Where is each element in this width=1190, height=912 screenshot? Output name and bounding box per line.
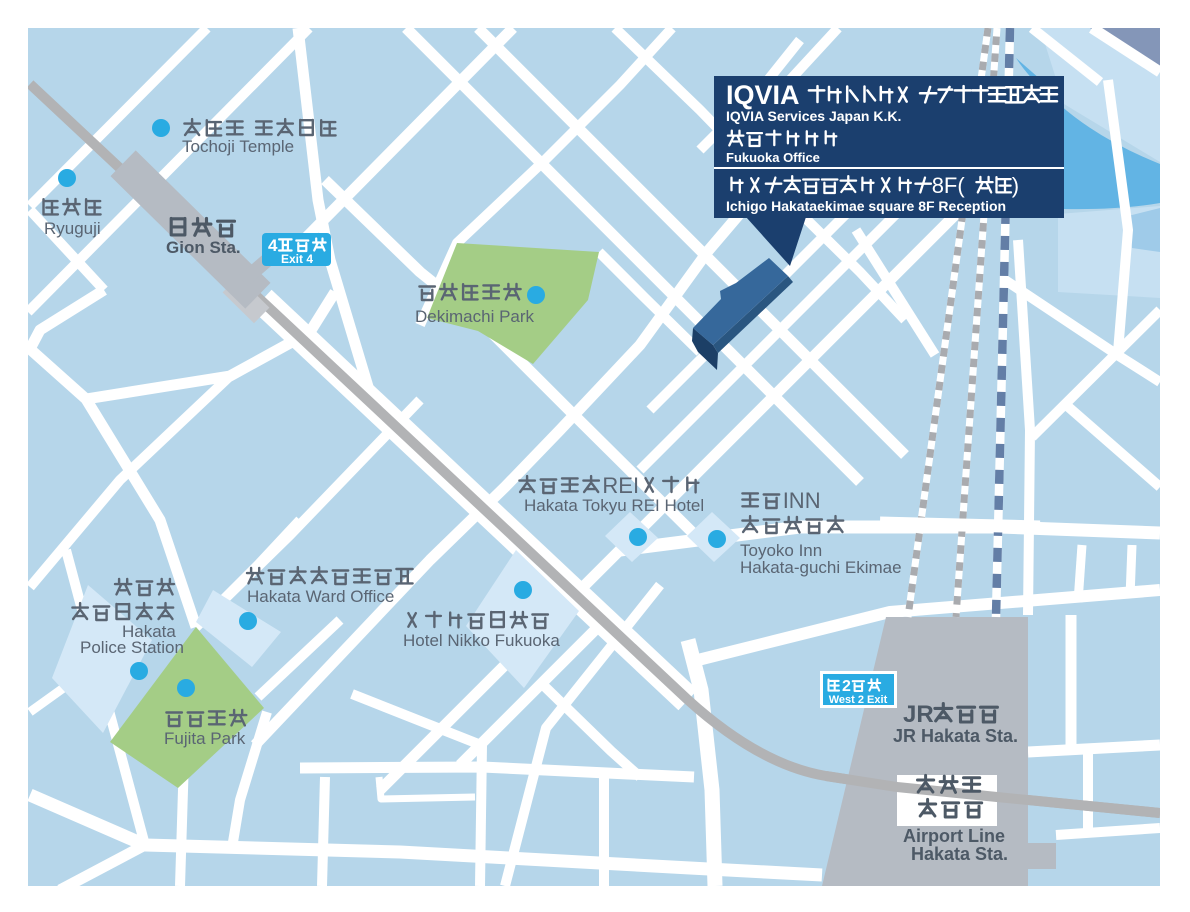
svg-text:Hakata-guchi Ekimae: Hakata-guchi Ekimae (740, 558, 902, 577)
svg-text:Tochoji Temple: Tochoji Temple (182, 137, 294, 156)
svg-text:): ) (1012, 173, 1019, 198)
svg-text:IQVIA: IQVIA (726, 80, 800, 110)
svg-text:2: 2 (842, 678, 851, 695)
svg-text:West 2 Exit: West 2 Exit (829, 694, 888, 706)
svg-text:8F(: 8F( (932, 173, 966, 198)
svg-text:REI: REI (602, 473, 639, 498)
svg-text:Fukuoka Office: Fukuoka Office (726, 150, 820, 165)
svg-text:INN: INN (783, 488, 821, 513)
svg-text:Police Station: Police Station (80, 638, 184, 657)
svg-text:Exit 4: Exit 4 (281, 252, 313, 266)
svg-text:Hotel Nikko Fukuoka: Hotel Nikko Fukuoka (403, 631, 560, 650)
svg-text:IQVIA Services Japan K.K.: IQVIA Services Japan K.K. (726, 108, 901, 124)
svg-text:JR Hakata Sta.: JR Hakata Sta. (893, 726, 1018, 746)
svg-text:Hakata Ward Office: Hakata Ward Office (247, 587, 394, 606)
svg-text:Hakata Tokyu REI Hotel: Hakata Tokyu REI Hotel (524, 496, 704, 515)
svg-text:Gion Sta.: Gion Sta. (166, 238, 241, 257)
svg-text:Fujita Park: Fujita Park (164, 729, 246, 748)
svg-text:4: 4 (268, 236, 278, 255)
svg-text:Ryuguji: Ryuguji (44, 219, 101, 238)
svg-text:Airport Line: Airport Line (903, 826, 1005, 846)
svg-text:Ichigo Hakataekimae square 8F: Ichigo Hakataekimae square 8F Reception (726, 198, 1006, 214)
svg-text:JR: JR (903, 701, 934, 728)
svg-text:Dekimachi Park: Dekimachi Park (415, 307, 535, 326)
svg-text:Hakata Sta.: Hakata Sta. (911, 844, 1008, 864)
